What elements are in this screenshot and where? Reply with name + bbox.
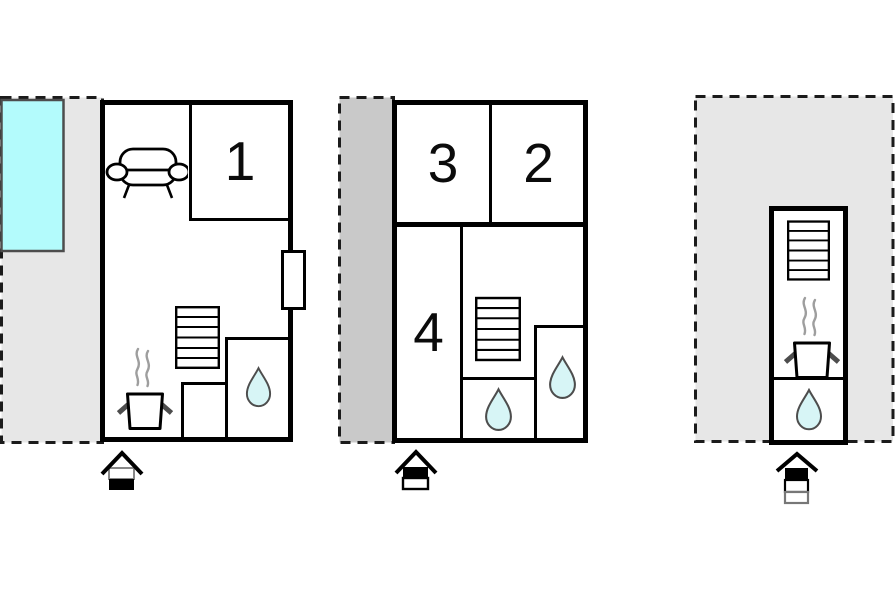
water-drop-icon — [794, 388, 824, 432]
interior-wall — [774, 377, 843, 380]
floor-cell-top-filled — [785, 468, 808, 480]
water-drop — [797, 390, 821, 429]
floor-plan-canvas: 1 — [0, 0, 896, 597]
steam-line — [813, 300, 815, 335]
plan-right-group — [0, 0, 896, 597]
pot-body — [795, 343, 830, 378]
stairs-icon — [787, 218, 830, 283]
floor-cell-bottom — [785, 492, 808, 503]
steam-line — [803, 298, 805, 334]
floor-cell-middle — [785, 480, 808, 492]
stove-icon — [784, 293, 840, 385]
entrance-icon-annex — [775, 451, 819, 505]
